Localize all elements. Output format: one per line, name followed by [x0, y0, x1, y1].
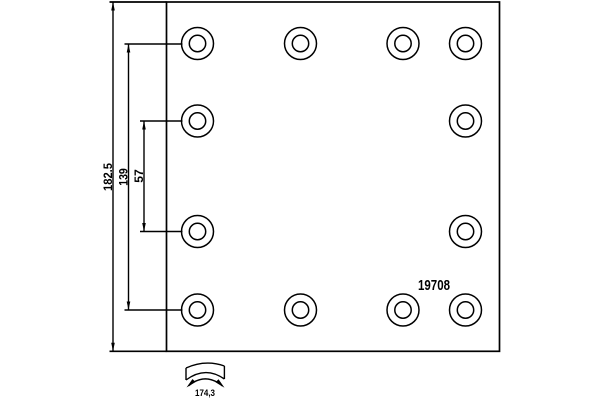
svg-text:19708: 19708 — [418, 277, 450, 294]
svg-text:57: 57 — [134, 169, 146, 183]
svg-text:174,3: 174,3 — [195, 388, 215, 399]
svg-text:139: 139 — [119, 168, 131, 186]
svg-text:182.5: 182.5 — [103, 162, 115, 191]
